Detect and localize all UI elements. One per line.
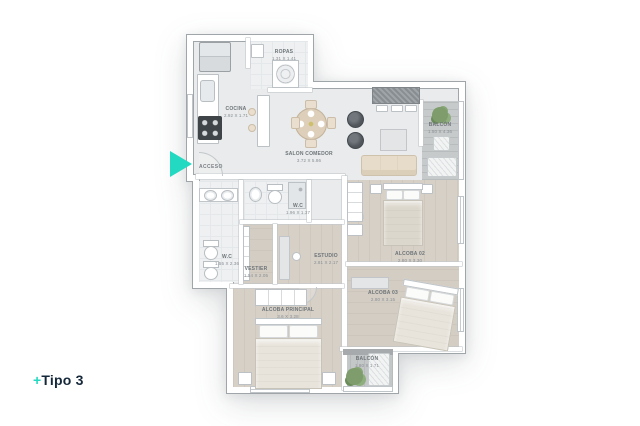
room-name: ESTUDIO <box>314 253 338 260</box>
room-dims: 2.92 X 1.71 <box>224 112 248 118</box>
wall <box>246 38 250 68</box>
dining-chair-icon <box>291 117 300 129</box>
window-icon <box>187 94 193 138</box>
plan-title: +Tipo 3 <box>33 372 84 388</box>
room-label-estudio: ESTUDIO 2.81 X 2.17 <box>314 253 338 265</box>
balcony-chair-icon <box>433 136 450 151</box>
bar-stool-icon <box>248 124 256 132</box>
fridge-icon <box>199 42 231 72</box>
room-label-cocina: COCINA 2.92 X 1.71 <box>224 106 248 118</box>
floorplan-page: ACCESO ROPAS 1.31 X 1.41 COCINA 2.92 X 1… <box>0 0 640 426</box>
entrance-label: ACCESO <box>199 164 223 170</box>
balcony-railing <box>343 386 393 392</box>
sink-icon <box>249 187 262 202</box>
plan-title-text: Tipo 3 <box>41 372 83 388</box>
study-desk-icon <box>279 236 290 280</box>
bed-icon-alcoba-03 <box>393 279 457 349</box>
desk-icon <box>372 87 420 104</box>
plant-icon <box>432 107 448 123</box>
dining-chair-icon <box>305 139 317 148</box>
armchair-icon <box>347 111 364 128</box>
entrance-marker-icon <box>170 151 192 177</box>
room-dims: 2.80 X 3.30 <box>395 257 425 263</box>
washer-icon <box>272 60 299 88</box>
wall <box>419 100 423 146</box>
room-label-ropas: ROPAS 1.31 X 1.41 <box>272 49 296 61</box>
washer-drum <box>276 64 295 84</box>
room-name: COCINA <box>224 106 248 113</box>
wall <box>273 224 277 284</box>
nightstand-icon <box>238 372 252 385</box>
room-dims: 1.50 X 4.36 <box>428 128 452 134</box>
room-label-alcoba-03: ALCOBA 03 2.80 X 3.15 <box>368 290 398 302</box>
room-dims: 3.6 X 3.28 <box>262 313 314 319</box>
toilet-icon <box>267 184 282 203</box>
nightstand-icon <box>322 372 336 385</box>
dining-chair-icon <box>305 100 317 109</box>
room-label-balcon-superior: BALCÓN 1.50 X 4.36 <box>428 122 452 134</box>
room-name: ALCOBA 02 <box>395 251 425 258</box>
room-dims: 1.31 X 1.41 <box>272 55 296 61</box>
room-label-alcoba-principal: ALCOBA PRINCIPAL 3.6 X 3.28 <box>262 307 314 319</box>
window-icon <box>457 196 464 244</box>
room-dims: 3.72 X 5.86 <box>285 157 333 163</box>
room-dims: 2.80 X 3.15 <box>368 296 398 302</box>
desk-chair-icon <box>376 105 388 112</box>
nightstand-icon <box>370 184 382 194</box>
room-dims: 1.55 X 2.36 <box>215 260 239 266</box>
wall <box>240 220 344 224</box>
room-label-vestier: VESTIER 1.54 X 2.05 <box>244 266 268 278</box>
room-label-salon-comedor: SALON COMEDOR 3.72 X 5.86 <box>285 151 333 163</box>
stove-icon <box>198 116 222 140</box>
room-name: BALCÓN <box>355 356 379 363</box>
wardrobe-icon <box>347 182 363 222</box>
wall <box>307 180 311 222</box>
plant-icon <box>346 368 363 385</box>
balcony-railing <box>458 101 464 180</box>
laundry-cabinet <box>251 44 264 58</box>
dining-chair-icon <box>327 117 336 129</box>
room-label-wc-principal: W.C 1.55 X 2.36 <box>215 254 239 266</box>
room-dims: 1.54 X 2.05 <box>244 272 268 278</box>
dresser-icon <box>347 224 363 236</box>
tv-cabinet-icon <box>380 129 407 151</box>
room-name: SALON COMEDOR <box>285 151 333 158</box>
sink-icon <box>221 190 234 201</box>
bed-icon-alcoba-02 <box>383 183 421 244</box>
room-name: ALCOBA 03 <box>368 290 398 297</box>
room-dims: 1.96 X 1.37 <box>286 209 310 215</box>
closet-icon <box>255 289 307 306</box>
room-dims: 1.80 X 1.71 <box>355 362 379 368</box>
bed-icon-principal <box>255 318 320 388</box>
room-name: VESTIER <box>244 266 268 273</box>
room-name: ROPAS <box>272 49 296 56</box>
wall <box>230 284 344 288</box>
desk-chair-icon <box>292 252 301 261</box>
dresser-icon <box>351 277 389 289</box>
room-name: ALCOBA PRINCIPAL <box>262 307 314 314</box>
sink-icon <box>204 190 217 201</box>
room-dims: 2.81 X 2.17 <box>314 259 338 265</box>
wall <box>268 88 312 92</box>
lounge-chair-icon <box>427 157 457 177</box>
room-label-alcoba-02: ALCOBA 02 2.80 X 3.30 <box>395 251 425 263</box>
window-icon <box>457 288 464 332</box>
sofa-icon <box>361 155 417 176</box>
desk-chair-icon <box>405 105 417 112</box>
kitchen-island <box>257 95 270 147</box>
bar-stool-icon <box>248 108 256 116</box>
desk-chair-icon <box>391 105 403 112</box>
armchair-icon <box>347 132 364 149</box>
room-label-balcon-inferior: BALCÓN 1.80 X 1.71 <box>355 356 379 368</box>
room-label-wc-social: W.C 1.96 X 1.37 <box>286 203 310 215</box>
sink-icon <box>200 80 215 102</box>
room-name: BALCÓN <box>428 122 452 129</box>
